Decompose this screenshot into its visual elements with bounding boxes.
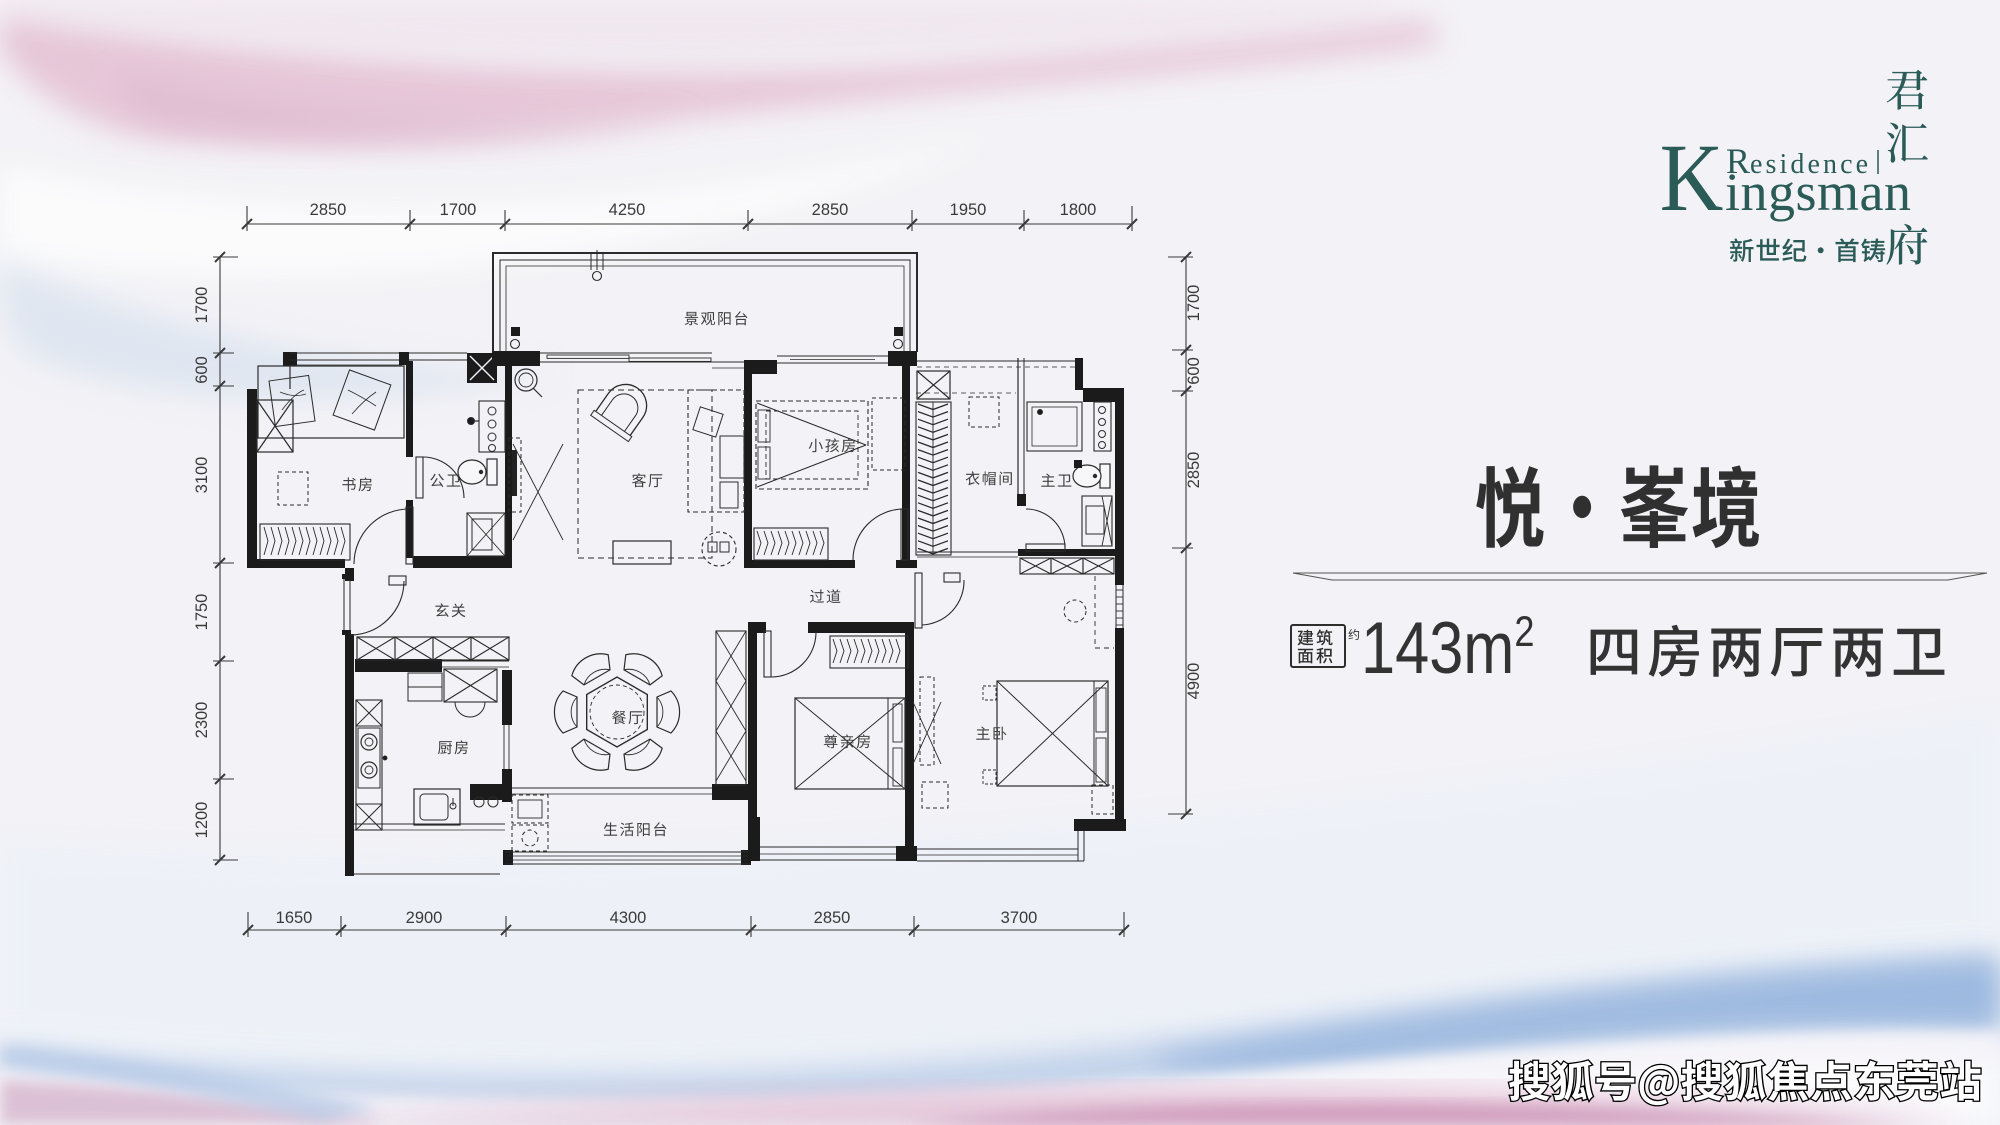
- svg-text:1650: 1650: [276, 909, 313, 927]
- svg-text:3700: 3700: [1001, 909, 1038, 927]
- svg-text:4900: 4900: [1185, 663, 1203, 700]
- svg-text:1950: 1950: [950, 201, 987, 219]
- svg-text:3100: 3100: [193, 457, 211, 494]
- svg-text:ingsman: ingsman: [1725, 162, 1912, 222]
- svg-text:2900: 2900: [406, 909, 443, 927]
- svg-text:600: 600: [193, 356, 211, 384]
- svg-text:2850: 2850: [1185, 452, 1203, 489]
- svg-text:1700: 1700: [193, 287, 211, 324]
- svg-text:1700: 1700: [1185, 285, 1203, 322]
- svg-text:1200: 1200: [193, 802, 211, 839]
- svg-text:143m2: 143m2: [1361, 608, 1534, 689]
- svg-text:2850: 2850: [812, 201, 849, 219]
- svg-text:600: 600: [1185, 357, 1203, 385]
- svg-text:4250: 4250: [609, 201, 646, 219]
- svg-text:2850: 2850: [310, 201, 347, 219]
- svg-text:1800: 1800: [1060, 201, 1097, 219]
- svg-text:1700: 1700: [440, 201, 477, 219]
- svg-text:2850: 2850: [814, 909, 851, 927]
- svg-text:1750: 1750: [193, 594, 211, 631]
- svg-text:4300: 4300: [610, 909, 647, 927]
- svg-text:K: K: [1660, 125, 1724, 231]
- svg-text:2300: 2300: [193, 702, 211, 739]
